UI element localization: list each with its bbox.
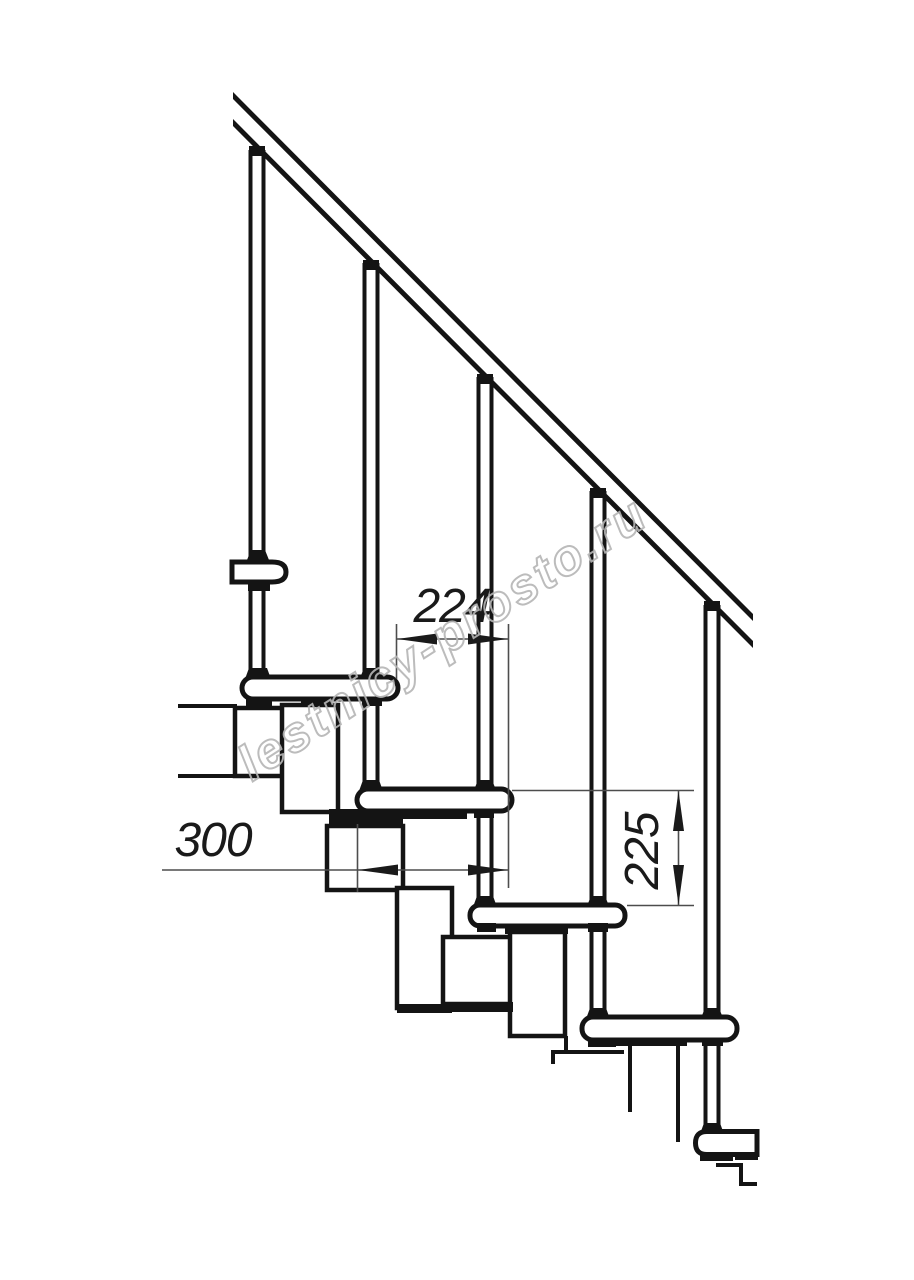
collar	[586, 1008, 610, 1019]
module-joint-band	[397, 1004, 452, 1013]
joint-mark	[702, 1038, 723, 1046]
module-box-6	[510, 932, 565, 1036]
tread-5-cut	[696, 1132, 758, 1155]
tread-4	[582, 1017, 737, 1040]
contour-line	[716, 1165, 757, 1184]
cutoff-contours	[553, 1036, 757, 1184]
module-box-5	[443, 937, 517, 1004]
dimension-label-300: 300	[174, 814, 252, 867]
collar	[473, 896, 497, 907]
joint-mark	[477, 923, 496, 932]
drawing-linework: 224 300 225 lestnicy-prosto.ru	[0, 0, 914, 1280]
module-box-3	[327, 826, 403, 890]
dimension-label-225: 225	[616, 811, 669, 890]
joint-mark	[735, 1153, 758, 1160]
module-joint-band	[445, 1002, 513, 1012]
joint-mark	[588, 1038, 616, 1047]
joint-mark	[329, 809, 403, 825]
arrowhead-right	[468, 865, 508, 876]
joint-mark	[505, 924, 568, 934]
arrowhead-down	[673, 865, 684, 905]
joint-mark	[588, 923, 608, 932]
tread-3	[470, 905, 625, 926]
landing-edge-lines	[178, 706, 237, 776]
mounting-collars	[245, 550, 758, 1161]
collar	[700, 1123, 724, 1134]
collar	[359, 780, 383, 791]
joint-mark	[246, 697, 272, 707]
staircase-technical-drawing: 224 300 225 lestnicy-prosto.ru	[0, 0, 914, 1280]
arrowhead-up	[673, 791, 684, 831]
joint-mark	[616, 1039, 687, 1046]
joint-mark	[700, 1152, 733, 1161]
tread-2	[357, 789, 512, 811]
collar	[248, 581, 270, 591]
collar	[245, 668, 271, 679]
baluster-5	[706, 605, 719, 1127]
joint-mark	[401, 809, 467, 819]
joint-mark	[474, 809, 494, 818]
upper-landing-tread	[232, 562, 286, 582]
baluster-1	[251, 150, 264, 672]
contour-line	[553, 1052, 624, 1064]
